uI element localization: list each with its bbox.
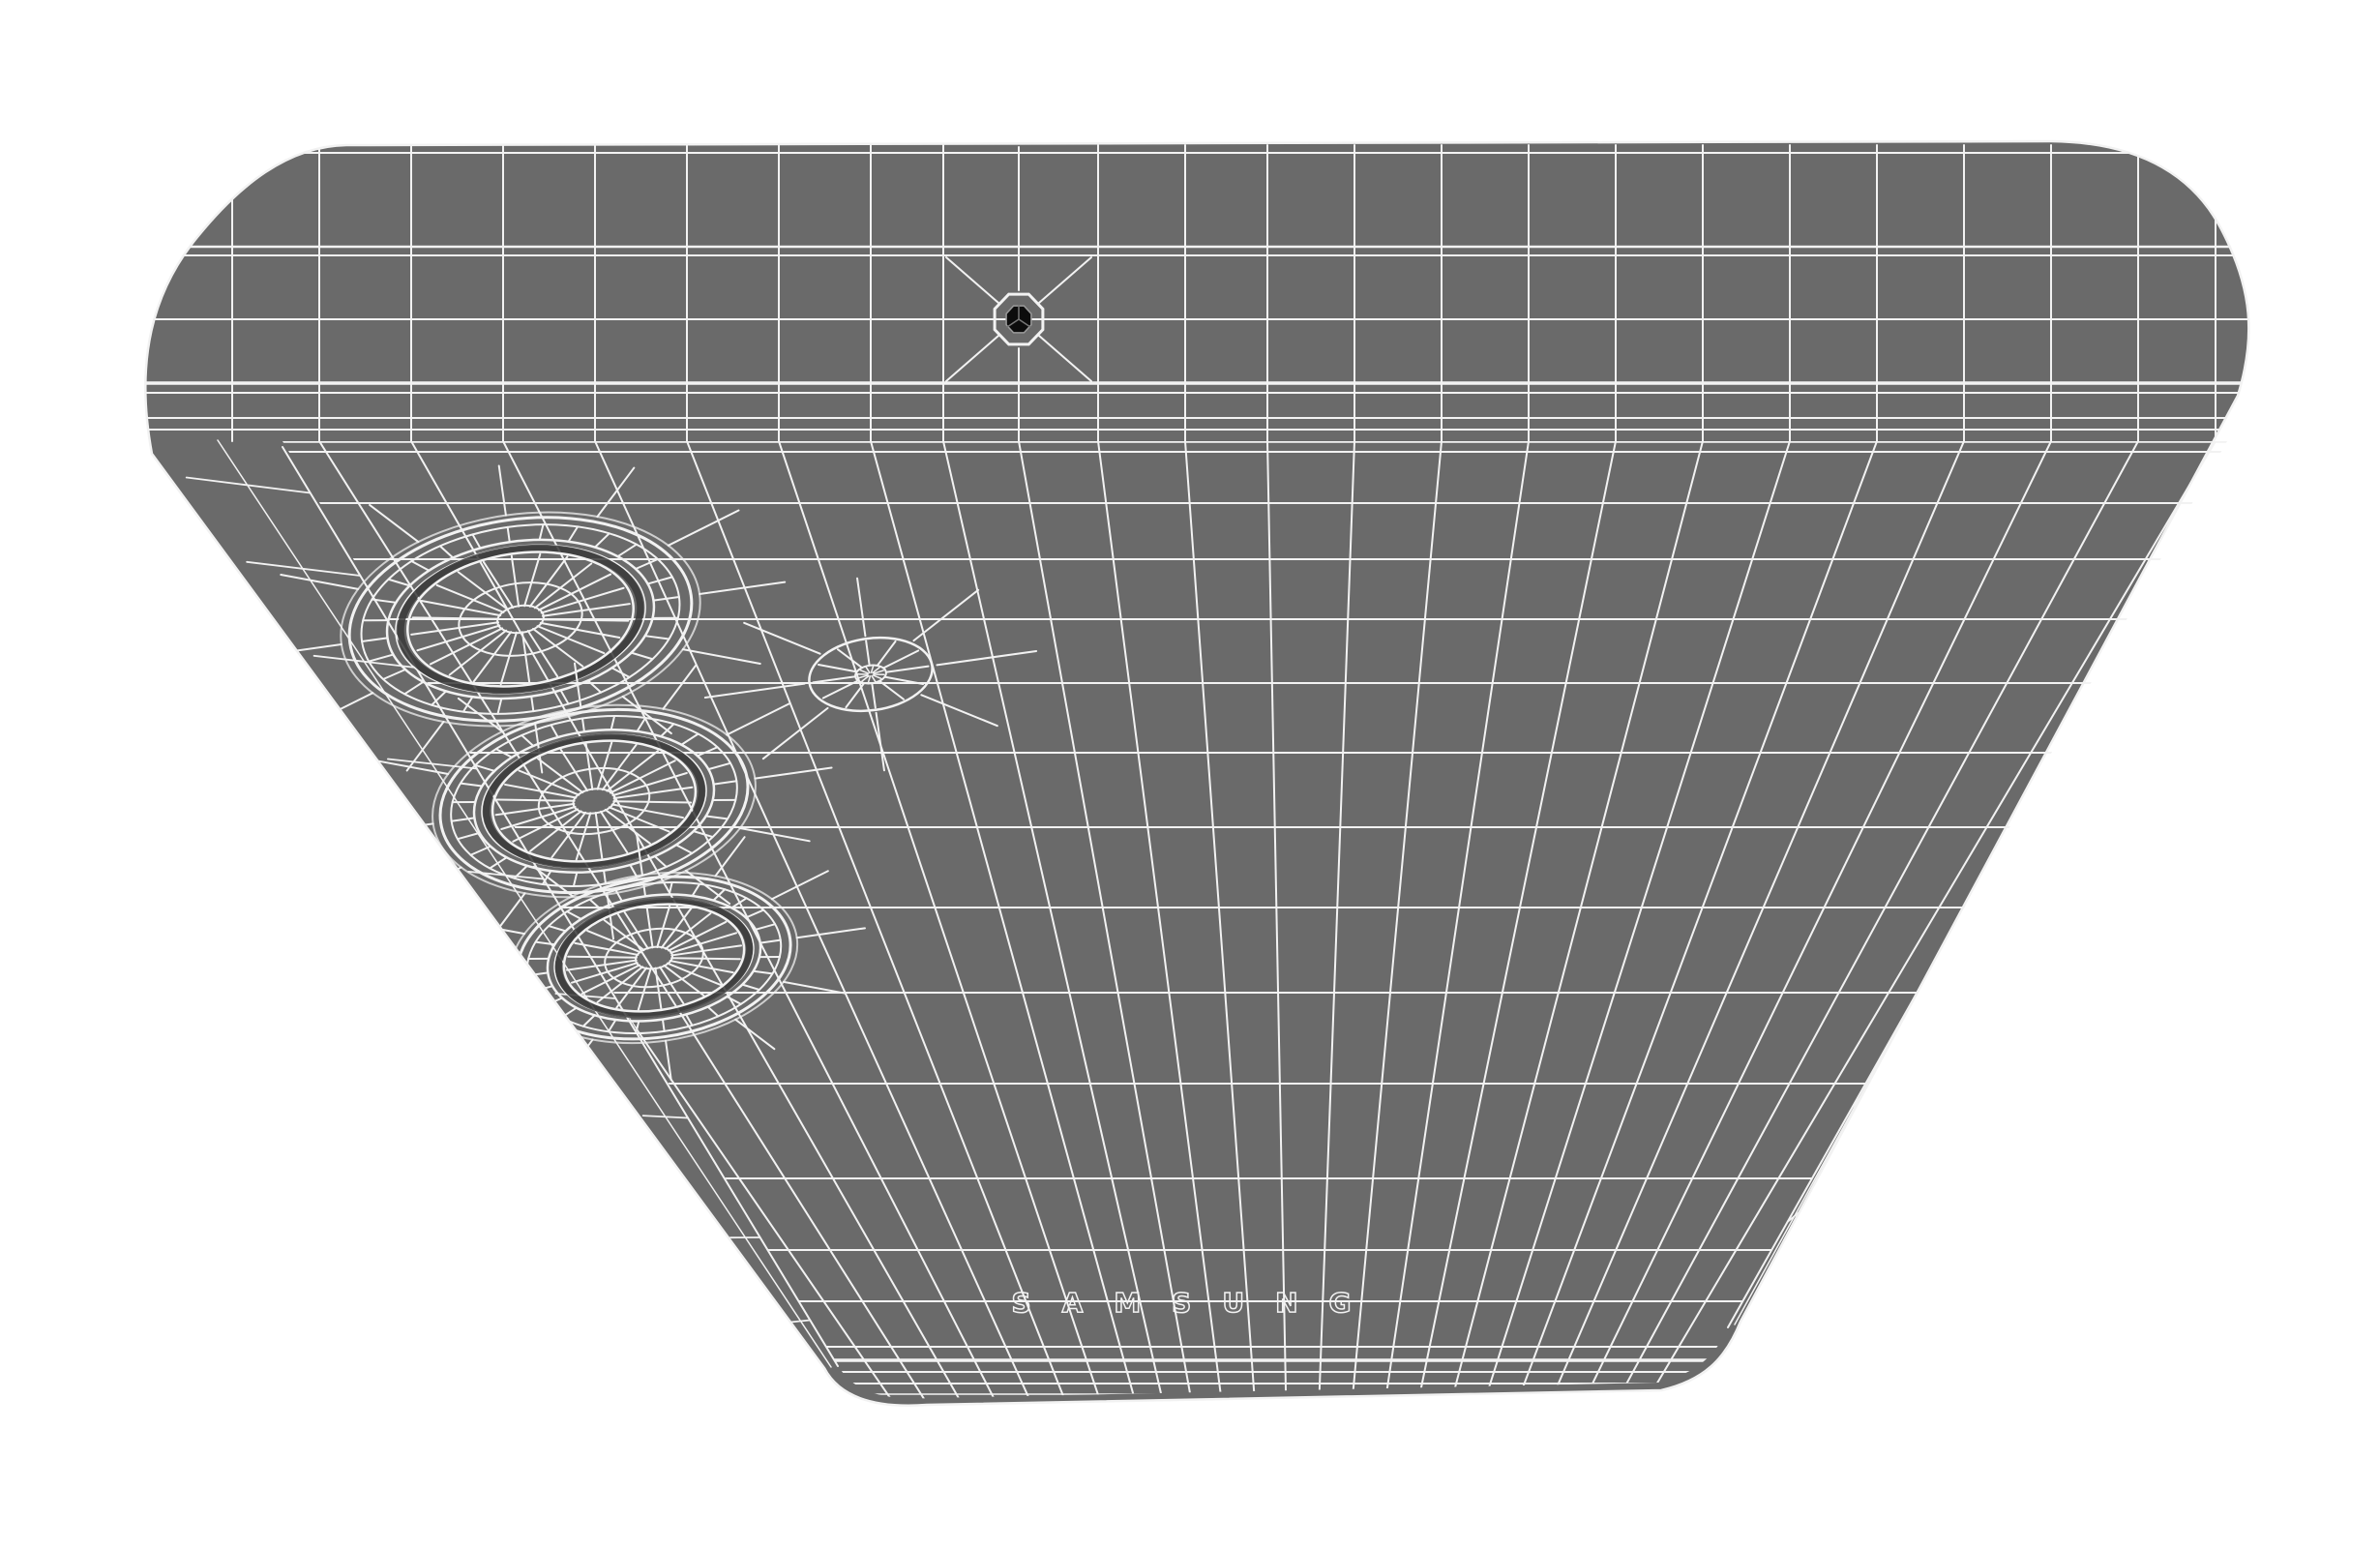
render-viewport: SAMSUNG bbox=[0, 0, 2380, 1548]
samsung-logo-text: SAMSUNG bbox=[1011, 1287, 1382, 1319]
wireframe-3d-phone-render: SAMSUNG bbox=[0, 0, 2380, 1548]
brand-logo: SAMSUNG bbox=[1011, 1287, 1382, 1319]
